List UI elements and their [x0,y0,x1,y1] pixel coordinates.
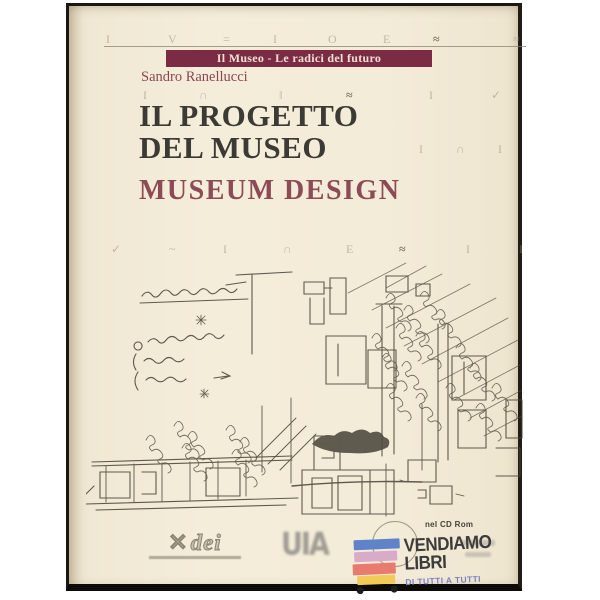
book-title-line2: DEL MUSEO [139,132,358,164]
decor-glyph: ≈ [399,243,406,255]
dei-logo-mark: ✕ [168,530,188,555]
decor-glyph: ✓ [111,243,121,255]
book-subtitle: MUSEUM DESIGN [139,175,400,207]
book-stack-bar-yellow [357,575,395,586]
decor-glyph: I [429,89,433,101]
decor-glyph: E [346,243,353,255]
series-banner-text: Il Museo - Le radici del futuro [217,51,381,66]
cover-architectural-sketch [86,258,526,526]
cart-wheel-icon [391,585,398,592]
store-tagline: DI TUTTI A TUTTI [405,574,481,587]
decor-glyph: I [273,33,277,45]
decor-glyph: I [498,143,502,155]
book-stack-bar-pink [354,550,397,562]
decor-glyph: I [466,243,470,255]
decor-glyph: = [223,33,230,45]
dei-publisher-logo: ✕dei [149,533,241,559]
decor-glyph: I [419,143,423,155]
decor-glyph: E [383,33,390,45]
decor-glyph: ~ [169,243,176,255]
decor-glyph: O [328,33,337,45]
book-stack-bar-red [353,563,396,576]
product-photo: I V = I O E ≈ ≈ Il Museo - Le radici del… [0,0,600,600]
decor-rule [104,46,526,47]
vendiamolibri-watermark: VENDIAMO LIBRI DI TUTTI A TUTTI [348,500,512,600]
dei-logo-tagline [149,556,241,559]
decor-glyph: ∩ [456,143,465,155]
book-stack-bar-blue [353,538,399,550]
decor-glyph: ∩ [283,243,292,255]
book-title: IL PROGETTO DEL MUSEO [139,100,358,164]
decor-glyph: I [519,243,523,255]
decor-glyph: I [223,243,227,255]
uia-logo: UIA [281,527,328,563]
cart-wheel-icon [357,587,364,594]
decor-glyph: V [168,33,177,45]
book-title-line1: IL PROGETTO [139,100,358,132]
store-name-line2: LIBRI [404,552,447,573]
decor-glyph: I [106,33,110,45]
decor-glyph: ≈ [433,33,440,45]
series-banner: Il Museo - Le radici del futuro [166,50,432,67]
decor-glyph: ≈ [513,33,520,45]
author-name: Sandro Ranellucci [141,69,248,86]
decor-glyph: ✓ [491,89,501,101]
dei-logo-text: dei [191,530,222,555]
